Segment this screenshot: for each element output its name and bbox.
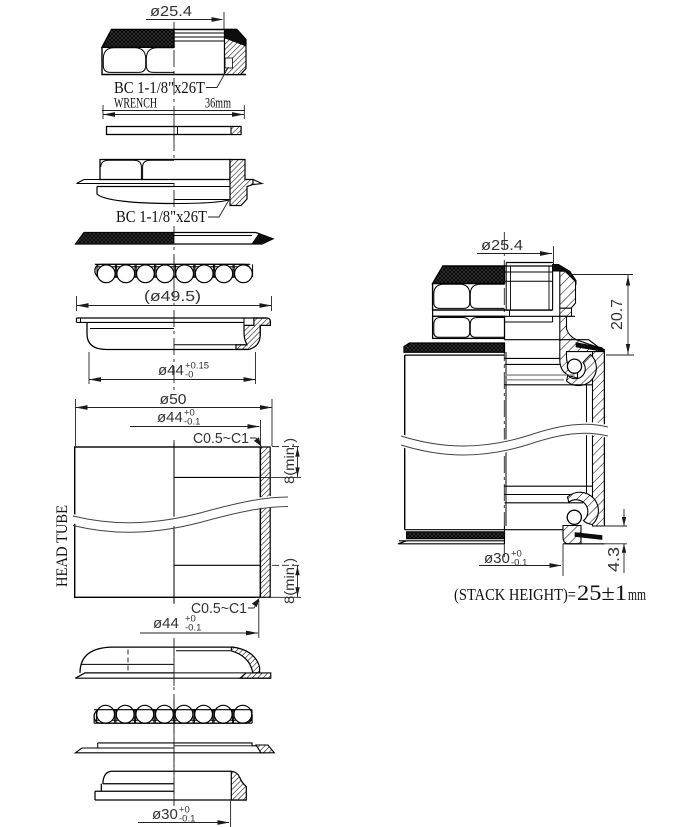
svg-text:4.3: 4.3 [606,547,623,572]
svg-text:BC 1-1/8"x26T: BC 1-1/8"x26T [116,207,207,226]
svg-text:(ø49.5): (ø49.5) [144,289,201,305]
svg-text:ø44: ø44 [153,615,179,632]
svg-text:-0.1: -0.1 [184,417,200,428]
svg-text:-0.1: -0.1 [185,623,201,634]
svg-text:ø44: ø44 [158,362,184,379]
svg-text:ø50: ø50 [160,391,187,408]
svg-text:(STACK HEIGHT)=: (STACK HEIGHT)= [454,585,576,604]
svg-text:-0: -0 [185,370,193,381]
svg-text:20.7: 20.7 [609,299,626,330]
svg-text:WRENCH: WRENCH [114,96,157,112]
svg-text:36mm: 36mm [205,96,231,112]
svg-text:ø25.4: ø25.4 [150,4,192,20]
svg-text:-0.1: -0.1 [511,558,527,569]
svg-text:ø30: ø30 [484,550,510,567]
svg-text:25±1: 25±1 [577,580,627,605]
svg-text:ø44: ø44 [157,409,183,426]
svg-text:8(min.): 8(min.) [282,558,297,604]
svg-text:HEAD TUBE: HEAD TUBE [54,505,71,587]
svg-text:C0.5~C1: C0.5~C1 [193,431,249,447]
svg-text:ø25.4: ø25.4 [481,238,523,254]
svg-text:C0.5~C1: C0.5~C1 [191,601,247,617]
svg-text:BC 1-1/8"x26T: BC 1-1/8"x26T [114,78,205,97]
svg-text:ø30: ø30 [152,806,178,823]
svg-text:mm: mm [628,585,646,604]
svg-text:8(min.): 8(min.) [282,438,297,484]
